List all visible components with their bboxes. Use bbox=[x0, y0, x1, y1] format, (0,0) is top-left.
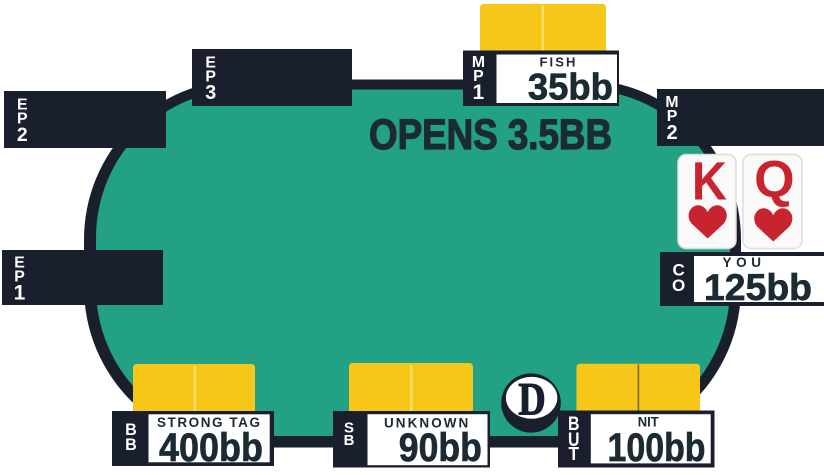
svg-text:100bb: 100bb bbox=[608, 426, 706, 470]
svg-text:B: B bbox=[344, 432, 355, 449]
svg-text:2: 2 bbox=[666, 122, 677, 144]
svg-text:T: T bbox=[569, 443, 580, 464]
svg-text:90bb: 90bb bbox=[399, 426, 482, 470]
svg-text:D: D bbox=[518, 374, 546, 426]
svg-text:400bb: 400bb bbox=[159, 426, 263, 470]
svg-text:1: 1 bbox=[14, 282, 26, 305]
svg-text:K: K bbox=[692, 152, 727, 212]
svg-text:OPENS 3.5BB: OPENS 3.5BB bbox=[369, 111, 612, 159]
svg-text:35bb: 35bb bbox=[528, 66, 613, 107]
svg-text:B: B bbox=[125, 436, 137, 454]
svg-text:1: 1 bbox=[473, 81, 485, 104]
svg-text:3: 3 bbox=[205, 82, 216, 104]
svg-text:Q: Q bbox=[754, 151, 794, 209]
svg-text:O: O bbox=[672, 276, 685, 295]
svg-text:125bb: 125bb bbox=[704, 267, 812, 308]
svg-text:2: 2 bbox=[17, 124, 28, 146]
